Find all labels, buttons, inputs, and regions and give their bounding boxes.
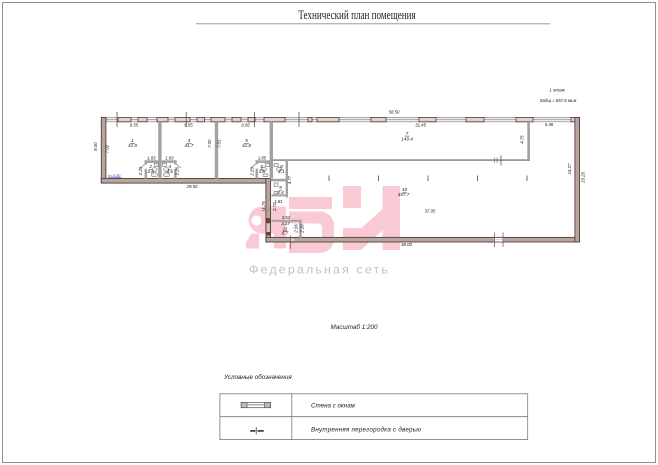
svg-text:Федеральная сеть: Федеральная сеть xyxy=(249,263,390,277)
svg-text:3.6: 3.6 xyxy=(259,169,266,174)
svg-text:1.83: 1.83 xyxy=(165,155,174,160)
svg-text:Условные обозначения: Условные обозначения xyxy=(223,373,292,381)
svg-text:3.6: 3.6 xyxy=(167,169,174,174)
svg-text:41.9: 41.9 xyxy=(128,143,137,148)
svg-text:7.01: 7.01 xyxy=(217,139,222,148)
svg-text:7: 7 xyxy=(406,131,409,136)
svg-text:Масштаб 1:200: Масштаб 1:200 xyxy=(331,323,378,331)
svg-text:37.05: 37.05 xyxy=(425,209,436,214)
svg-text:3.4: 3.4 xyxy=(277,190,284,195)
svg-text:2.25: 2.25 xyxy=(138,166,143,176)
svg-text:31.45: 31.45 xyxy=(415,123,426,128)
svg-text:6.56: 6.56 xyxy=(241,123,250,128)
svg-text:6.55: 6.55 xyxy=(184,123,193,128)
svg-text:5.48: 5.48 xyxy=(545,122,554,127)
svg-text:3.52: 3.52 xyxy=(282,215,291,220)
svg-text:2.1: 2.1 xyxy=(277,169,285,174)
svg-text:2.06: 2.06 xyxy=(293,224,298,234)
svg-text:357.7: 357.7 xyxy=(398,192,410,197)
svg-text:2.72: 2.72 xyxy=(272,202,277,212)
svg-text:h=3.30: h=3.30 xyxy=(108,173,121,178)
svg-text:41.7: 41.7 xyxy=(185,143,194,148)
svg-text:58.50: 58.50 xyxy=(389,110,400,115)
svg-text:Стена с окнам: Стена с окнам xyxy=(311,403,356,410)
svg-text:Технический план помещения: Технический план помещения xyxy=(298,8,415,22)
svg-text:41.8: 41.8 xyxy=(242,143,251,148)
svg-text:1 этаж: 1 этаж xyxy=(549,88,565,93)
svg-text:15.25: 15.25 xyxy=(580,172,585,183)
svg-text:14.27: 14.27 xyxy=(567,163,572,174)
svg-text:1.83: 1.83 xyxy=(147,155,156,160)
svg-text:29.50: 29.50 xyxy=(186,184,198,189)
svg-text:2.25: 2.25 xyxy=(175,166,180,176)
svg-text:7.00: 7.00 xyxy=(207,139,212,148)
svg-text:8.00: 8.00 xyxy=(93,142,98,151)
svg-text:2.25: 2.25 xyxy=(250,167,255,177)
svg-text:Внутренняя перегородка с двер: Внутренняя перегородка с дверью xyxy=(311,427,421,434)
svg-text:3.6: 3.6 xyxy=(147,169,154,174)
svg-text:7.02: 7.02 xyxy=(104,144,109,153)
svg-text:38.00: 38.00 xyxy=(401,242,412,247)
svg-text:4.75: 4.75 xyxy=(520,135,525,144)
svg-text:Sобщ = 657.5 кв.м: Sобщ = 657.5 кв.м xyxy=(540,98,577,103)
svg-text:2.16: 2.16 xyxy=(300,224,305,234)
svg-text:6.55: 6.55 xyxy=(130,122,139,127)
svg-text:149.4: 149.4 xyxy=(401,137,413,142)
svg-text:1.75: 1.75 xyxy=(261,201,266,210)
svg-text:3.37: 3.37 xyxy=(281,221,290,226)
svg-text:4.77: 4.77 xyxy=(287,175,292,184)
svg-text:1.85: 1.85 xyxy=(258,155,267,160)
